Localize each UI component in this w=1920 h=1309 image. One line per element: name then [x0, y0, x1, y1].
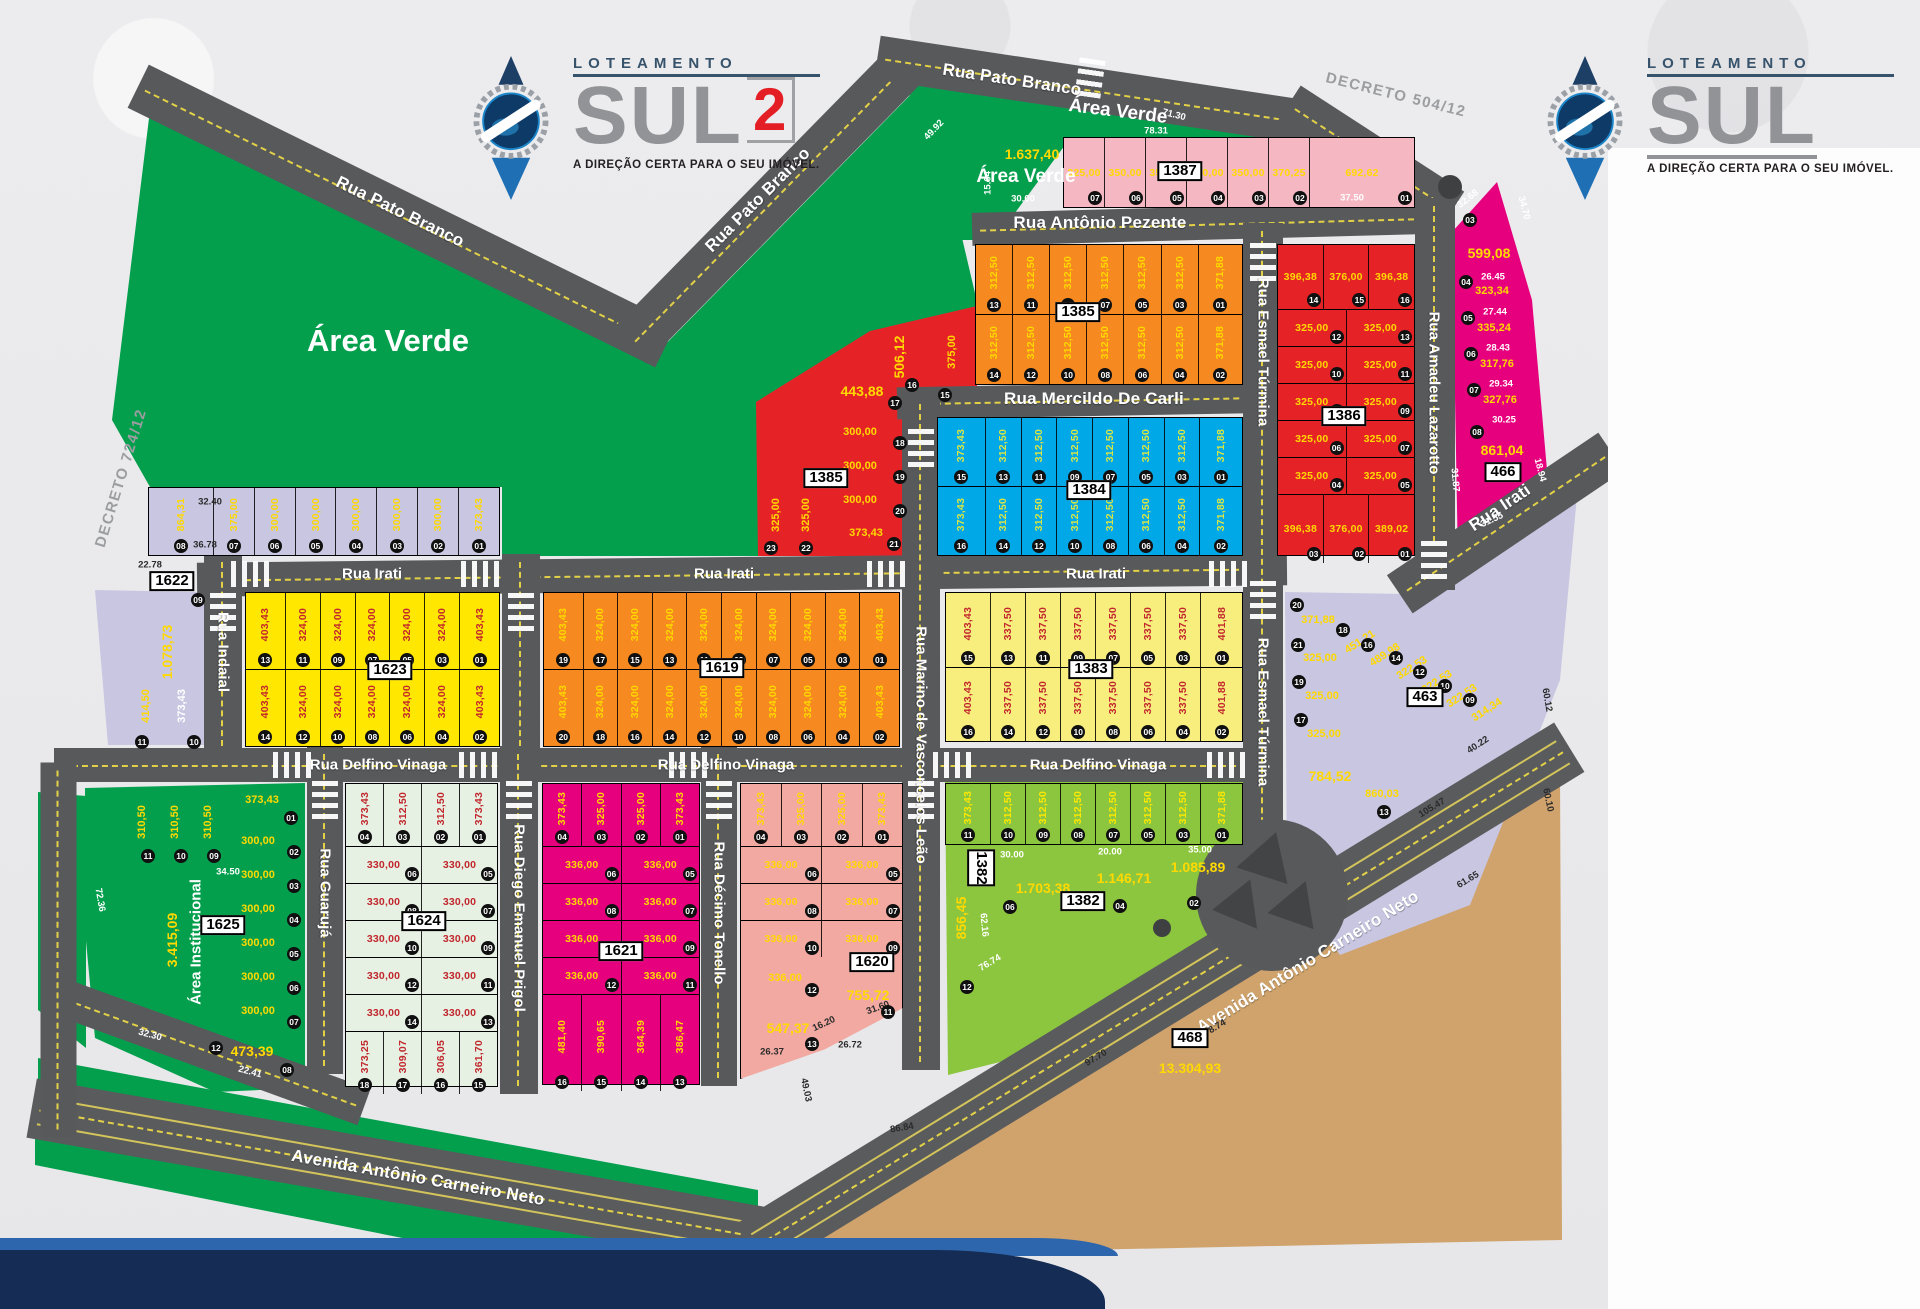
lot-area: 324,00 — [629, 685, 641, 718]
lot-number: 05 — [1170, 191, 1184, 205]
lot-area: 373,43 — [955, 429, 967, 462]
block-badge: 1383 — [1068, 659, 1113, 679]
lot[interactable]: 324,0010 — [722, 670, 757, 746]
quadra-1621: 373,4304325,0003325,0002373,4301336,0006… — [542, 783, 700, 1085]
lot[interactable]: 373,4301 — [460, 784, 497, 846]
lot-number: 08 — [174, 539, 188, 553]
quadra-1386: 396,3814376,0015396,3816325,0012325,0013… — [1277, 244, 1415, 556]
dimension-label: 29.34 — [1489, 379, 1513, 390]
dimension-label: 49.03 — [798, 1077, 814, 1103]
lot-number: 09 — [683, 941, 697, 955]
crosswalk — [1250, 243, 1276, 281]
lot-number: 14 — [996, 539, 1010, 553]
lot-area: 373,43 — [359, 792, 371, 825]
lot[interactable]: 324,0007 — [356, 593, 391, 669]
street-label: Rua Delfino Vinaga — [310, 757, 446, 774]
lot[interactable]: 337,5003 — [1166, 593, 1201, 667]
lot[interactable]: 312,5014 — [976, 315, 1013, 384]
lot[interactable]: 389,0201 — [1369, 495, 1414, 563]
lot-area: 401,88 — [1216, 607, 1228, 640]
lot[interactable]: 403,4313 — [246, 593, 286, 669]
lot-area: 330,00 — [443, 859, 476, 871]
lot[interactable]: 373,4301 — [661, 784, 699, 846]
lot[interactable]: 336,0008 — [741, 884, 822, 920]
lot-number: 08 — [1103, 539, 1117, 553]
lot-number: 05 — [1398, 478, 1412, 492]
lot[interactable]: 370,2502 — [1269, 138, 1310, 207]
block-badge: 1621 — [598, 941, 643, 961]
block-badge: 1384 — [1066, 480, 1111, 500]
lot-number: 10 — [1330, 367, 1344, 381]
lot-number: 15 — [954, 470, 968, 484]
lot[interactable]: 371,8802 — [1199, 315, 1242, 384]
lot[interactable]: 312,5013 — [976, 245, 1013, 314]
lot[interactable]: 371,8801 — [1200, 418, 1242, 486]
lot-row: 336,0006336,0005 — [741, 846, 902, 883]
lot[interactable]: 330,0006 — [346, 847, 422, 883]
lot-area: 375,00 — [228, 498, 240, 531]
lot-area: 330,00 — [367, 896, 400, 908]
lot[interactable]: 330,0005 — [422, 847, 497, 883]
lot[interactable]: 312,5006 — [1124, 315, 1161, 384]
lot[interactable]: 373,4304 — [543, 784, 582, 846]
lot-area: 324,00 — [837, 608, 849, 641]
lot-number: 11 — [296, 653, 310, 667]
decree-label: DECRETO 504/12 — [1324, 69, 1468, 120]
road[interactable] — [40, 763, 76, 1138]
lot[interactable]: 336,0012 — [543, 958, 622, 994]
lot-area: 325,00 — [800, 498, 812, 532]
dimension-label: 28.43 — [1486, 343, 1510, 354]
lot[interactable]: 325,0012 — [1278, 310, 1347, 346]
lot[interactable]: 361,7015 — [460, 1032, 497, 1094]
lot[interactable]: 337,5011 — [1026, 593, 1061, 667]
lot-area: 324,00 — [366, 685, 378, 718]
lot-number: 06 — [1330, 441, 1344, 455]
lot-area: 312,50 — [1176, 429, 1188, 462]
lot-number: 11 — [683, 978, 697, 992]
lot-area: 373,43 — [849, 527, 883, 539]
lot[interactable]: 300,0003 — [377, 488, 418, 555]
lot[interactable]: 324,0016 — [618, 670, 653, 746]
lot-number: 07 — [1467, 383, 1481, 397]
lot-number: 06 — [287, 981, 301, 995]
lot-number: 19 — [1292, 675, 1306, 689]
dimension-label: 36.78 — [193, 540, 217, 551]
lot-number: 14 — [634, 1075, 648, 1089]
crosswalk — [1250, 581, 1276, 619]
lot[interactable]: 373,4315 — [938, 418, 986, 486]
lot[interactable]: 350,0006 — [1105, 138, 1146, 207]
lot[interactable]: 324,0006 — [791, 670, 826, 746]
lot[interactable]: 403,4301 — [460, 593, 499, 669]
lot-row: 403,4320324,0018324,0016324,0014324,0012… — [544, 669, 899, 746]
lot[interactable]: 390,6515 — [582, 995, 621, 1091]
lot[interactable]: 312,5012 — [1013, 315, 1050, 384]
lot[interactable]: 403,4320 — [544, 670, 584, 746]
lot[interactable]: 325,0006 — [1278, 421, 1347, 457]
lot[interactable]: 324,0013 — [653, 593, 688, 669]
lot[interactable]: 325,0002 — [622, 784, 661, 846]
lot[interactable]: 324,0006 — [390, 670, 425, 746]
lot[interactable]: 324,0005 — [791, 593, 826, 669]
lot-number: 14 — [663, 730, 677, 744]
lot-area: 324,00 — [664, 685, 676, 718]
lot-area: 403,43 — [962, 607, 974, 640]
lot[interactable]: 373,2518 — [346, 1032, 384, 1094]
block-badge: 1624 — [401, 911, 446, 931]
lot[interactable]: 337,5014 — [991, 668, 1026, 742]
lot[interactable]: 371,8801 — [1201, 784, 1242, 844]
lot-number: 09 — [1463, 693, 1477, 707]
lot[interactable]: 325,0004 — [1278, 458, 1347, 494]
lot[interactable]: 396,3814 — [1278, 245, 1324, 309]
lot-area: 443,88 — [841, 383, 884, 399]
lot[interactable]: 336,0005 — [822, 847, 902, 883]
lot-area: 325,00 — [1295, 322, 1328, 334]
dimension-label: 30.25 — [1492, 415, 1516, 426]
lot-number: 13 — [673, 1075, 687, 1089]
lot[interactable]: 336,0010 — [741, 921, 822, 957]
lot[interactable]: 324,0005 — [390, 593, 425, 669]
lot[interactable]: 330,0013 — [422, 995, 497, 1031]
lot[interactable]: 312,5005 — [1131, 784, 1166, 844]
lot-number: 14 — [987, 368, 1001, 382]
lot-number: 18 — [893, 436, 907, 450]
lot-area: 373,43 — [955, 498, 967, 531]
lot-area: 337,50 — [1072, 681, 1084, 714]
lot[interactable]: 373,4304 — [741, 784, 782, 846]
street-label: Rua Mercildo De Carli — [1004, 389, 1184, 409]
lot-area: 330,00 — [367, 1007, 400, 1019]
lot[interactable]: 330,0014 — [346, 995, 422, 1031]
lot-area: 310,50 — [136, 805, 148, 839]
lot-number: 22 — [799, 541, 813, 555]
lot-area: 312,50 — [1140, 429, 1152, 462]
lot[interactable]: 364,3914 — [622, 995, 661, 1091]
lot-area: 336,00 — [845, 859, 878, 871]
lot-area: 373,43 — [674, 792, 686, 825]
lot[interactable]: 336,0006 — [543, 847, 622, 883]
lot[interactable]: 300,0006 — [255, 488, 296, 555]
lot-area: 300,00 — [241, 869, 275, 881]
lot-number: 07 — [287, 1015, 301, 1029]
lot-area: 323,34 — [1475, 285, 1509, 297]
lot-area: 300,00 — [843, 494, 877, 506]
lot[interactable]: 312,5008 — [1061, 784, 1096, 844]
lot[interactable]: 350,0003 — [1228, 138, 1269, 207]
lot-area: 325,00 — [1364, 433, 1397, 445]
lot[interactable]: 309,0717 — [384, 1032, 422, 1094]
lot-area: 312,50 — [397, 792, 409, 825]
lot-number: 02 — [434, 830, 448, 844]
crosswalk — [1209, 561, 1247, 587]
lot-number: 01 — [1215, 651, 1229, 665]
lot-number: 15 — [628, 653, 642, 667]
lot[interactable]: 312,5002 — [422, 784, 460, 846]
lot[interactable]: 325,0002 — [822, 784, 863, 846]
lot-number: 11 — [141, 849, 155, 863]
lot[interactable]: 324,0014 — [653, 670, 688, 746]
lot-area: 312,50 — [988, 326, 1000, 359]
lot-area: 325,00 — [635, 792, 647, 825]
lot[interactable]: 401,8802 — [1201, 668, 1242, 742]
lot[interactable]: 376,0015 — [1324, 245, 1370, 309]
lot[interactable]: 403,4314 — [246, 670, 286, 746]
lot-area: 312,50 — [1174, 256, 1186, 289]
lot[interactable]: 325,0011 — [1347, 347, 1415, 383]
lot[interactable]: 403,4316 — [946, 668, 991, 742]
lot-area: 324,00 — [297, 608, 309, 641]
lot-number: 08 — [1071, 828, 1085, 842]
lot[interactable]: 396,3816 — [1369, 245, 1414, 309]
lot[interactable]: 312,5014 — [986, 487, 1022, 555]
lot[interactable]: 325,0003 — [582, 784, 621, 846]
lot[interactable]: 324,0004 — [425, 670, 460, 746]
lot[interactable]: 373,4316 — [938, 487, 986, 555]
dimension-label: 62.16 — [977, 913, 990, 938]
lot-number: 03 — [1176, 651, 1190, 665]
lot[interactable]: 324,0008 — [356, 670, 391, 746]
lot-number: 03 — [1173, 298, 1187, 312]
lot[interactable]: 300,0002 — [418, 488, 459, 555]
lot[interactable]: 306,0516 — [422, 1032, 460, 1094]
lot[interactable]: 336,0006 — [741, 847, 822, 883]
lot[interactable]: 337,5005 — [1131, 593, 1166, 667]
lot[interactable]: 371,8802 — [1200, 487, 1242, 555]
lot-area: 371,88 — [1301, 614, 1335, 626]
lot-row: 396,3814376,0015396,3816 — [1278, 245, 1414, 309]
lot[interactable]: 312,5003 — [1165, 418, 1201, 486]
lot-area: 1.146,71 — [1097, 870, 1152, 886]
lot[interactable]: 373,4311 — [946, 784, 991, 844]
lot[interactable]: 324,0017 — [584, 593, 619, 669]
lot-area: 324,00 — [733, 608, 745, 641]
lot-area: 373,43 — [473, 792, 485, 825]
lot[interactable]: 325,0007 — [1347, 421, 1415, 457]
lot[interactable]: 324,0011 — [286, 593, 321, 669]
lot-area: 373,43 — [176, 689, 188, 723]
lot[interactable]: 403,4315 — [946, 593, 991, 667]
lot[interactable]: 336,0008 — [543, 884, 622, 920]
compass-icon — [463, 55, 559, 201]
lot-area: 324,00 — [698, 608, 710, 641]
lot[interactable]: 373,4301 — [459, 488, 499, 555]
lot[interactable]: 312,5006 — [1129, 487, 1165, 555]
lot-number: 02 — [1215, 725, 1229, 739]
lot[interactable]: 312,5010 — [991, 784, 1026, 844]
lot[interactable]: 312,5007 — [1093, 418, 1129, 486]
lot[interactable]: 325,0010 — [1278, 347, 1347, 383]
crosswalk — [508, 593, 534, 631]
lot-number: 10 — [1071, 725, 1085, 739]
lot[interactable]: 300,0005 — [296, 488, 337, 555]
lot[interactable]: 324,0012 — [286, 670, 321, 746]
lot[interactable]: 396,3803 — [1278, 495, 1324, 563]
lot-number: 04 — [555, 830, 569, 844]
lot[interactable]: 336,0005 — [622, 847, 700, 883]
lot[interactable]: 337,5007 — [1096, 593, 1131, 667]
lot[interactable]: 481,4016 — [543, 995, 582, 1091]
lot[interactable]: 312,5005 — [1129, 418, 1165, 486]
lot-area: 324,00 — [802, 608, 814, 641]
lot-number: 15 — [961, 651, 975, 665]
lot-row: 336,0012336,0011 — [543, 957, 699, 994]
lot[interactable]: 325,0013 — [1347, 310, 1415, 346]
lot-area: 692,62 — [1345, 167, 1378, 179]
dimension-label: 34.50 — [216, 867, 240, 878]
lot-area: 336,00 — [565, 896, 598, 908]
lot[interactable]: 312,5013 — [986, 418, 1022, 486]
lot-number: 12 — [296, 730, 310, 744]
lot[interactable]: 324,0003 — [425, 593, 460, 669]
lot-area: 312,50 — [1033, 429, 1045, 462]
lot[interactable]: 324,0008 — [757, 670, 792, 746]
lot[interactable]: 312,5007 — [1096, 784, 1131, 844]
lot[interactable]: 324,0012 — [687, 670, 722, 746]
lot[interactable]: 312,5012 — [1022, 487, 1058, 555]
lot[interactable]: 324,0009 — [321, 593, 356, 669]
lot-number: 03 — [390, 539, 404, 553]
lot-number: 11 — [1024, 298, 1038, 312]
lot-number: 03 — [1176, 828, 1190, 842]
dimension-label: 32.40 — [198, 497, 222, 508]
lot-area: 312,50 — [1104, 429, 1116, 462]
lot-number: 12 — [605, 978, 619, 992]
lot-number: 04 — [836, 730, 850, 744]
dimension-label: 22.78 — [138, 560, 162, 571]
quadra-1385: 312,5013312,5011312,5009312,5007312,5005… — [975, 244, 1243, 385]
lot[interactable]: 312,5009 — [1057, 418, 1093, 486]
lot-number: 08 — [1098, 368, 1112, 382]
dimension-label: 31.87 — [1448, 468, 1461, 493]
block-badge: 1623 — [367, 660, 412, 680]
lot-number: 17 — [1294, 713, 1308, 727]
lot[interactable]: 312,5010 — [1050, 315, 1087, 384]
lot-number: 05 — [1135, 298, 1149, 312]
lot[interactable]: 324,0010 — [321, 670, 356, 746]
lot[interactable]: 312,5005 — [1124, 245, 1161, 314]
lot-area: 324,00 — [401, 685, 413, 718]
lot-area: 300,00 — [241, 971, 275, 983]
lot[interactable]: 401,8801 — [1201, 593, 1242, 667]
lot-number: 03 — [435, 653, 449, 667]
lot[interactable]: 324,0007 — [757, 593, 792, 669]
lot-number: 10 — [1001, 828, 1015, 842]
lot[interactable]: 403,4319 — [544, 593, 584, 669]
lot-area: 300,00 — [241, 1005, 275, 1017]
lot[interactable]: 300,0004 — [336, 488, 377, 555]
dimension-label: 26.72 — [838, 1040, 862, 1051]
logo-name: SUL — [573, 77, 743, 155]
lot[interactable]: 336,0007 — [622, 884, 700, 920]
lot[interactable]: 337,5006 — [1131, 668, 1166, 742]
lot[interactable]: 312,5003 — [1162, 245, 1199, 314]
lot[interactable]: 312,5009 — [1026, 784, 1061, 844]
lot-number: 01 — [472, 830, 486, 844]
lot[interactable]: 336,0011 — [622, 958, 700, 994]
lot[interactable]: 403,4302 — [860, 670, 899, 746]
lot-number: 03 — [1463, 213, 1477, 227]
lot-number: 13 — [1377, 805, 1391, 819]
lot[interactable]: 324,0003 — [826, 593, 861, 669]
block-badge: 1385 — [803, 468, 848, 488]
lot-number: 08 — [365, 730, 379, 744]
lot-area: 300,00 — [432, 498, 444, 531]
lot[interactable]: 337,5013 — [991, 593, 1026, 667]
lot[interactable]: 312,5004 — [1162, 315, 1199, 384]
lot-area: 325,00 — [1295, 433, 1328, 445]
street-label: Rua Indaial — [215, 612, 232, 692]
lot[interactable]: 312,5011 — [1022, 418, 1058, 486]
lot-area: 336,00 — [644, 896, 677, 908]
dimension-label: 35.00 — [1188, 845, 1212, 856]
lot[interactable]: 403,4302 — [460, 670, 499, 746]
lot[interactable]: 324,0018 — [584, 670, 619, 746]
dimension-label: 78.31 — [1144, 126, 1168, 137]
lot-area: 337,50 — [1177, 607, 1189, 640]
lot-area: 324,00 — [698, 685, 710, 718]
lot-number: 03 — [794, 830, 808, 844]
lot-area: 386,47 — [674, 1020, 686, 1053]
lot[interactable]: 336,0007 — [822, 884, 902, 920]
lot[interactable]: 324,0015 — [618, 593, 653, 669]
lot[interactable]: 325,0005 — [1347, 458, 1415, 494]
lot-area: 300,00 — [310, 498, 322, 531]
lot-number: 09 — [191, 593, 205, 607]
lot[interactable]: 312,5003 — [384, 784, 422, 846]
lot-area: 373,43 — [556, 792, 568, 825]
lot[interactable]: 373,4301 — [863, 784, 903, 846]
crosswalk — [706, 781, 732, 819]
lot[interactable]: 403,4301 — [860, 593, 899, 669]
lot[interactable]: 312,5004 — [1165, 487, 1201, 555]
lot-number: 06 — [1141, 725, 1155, 739]
block-badge: 463 — [1406, 687, 1443, 707]
lot-number: 05 — [1141, 828, 1155, 842]
lot[interactable]: 330,0011 — [422, 958, 497, 994]
lot[interactable]: 312,5011 — [1013, 245, 1050, 314]
lot-area: 403,43 — [557, 685, 569, 718]
lot-area: 312,50 — [1037, 791, 1049, 824]
lot[interactable]: 337,5012 — [1026, 668, 1061, 742]
road[interactable] — [502, 554, 540, 754]
lot-area: 312,50 — [997, 429, 1009, 462]
lot[interactable]: 373,4304 — [346, 784, 384, 846]
block-badge: 1382 — [1060, 891, 1105, 911]
lot[interactable]: 337,5004 — [1166, 668, 1201, 742]
dimension-label: 30.00 — [1000, 850, 1024, 861]
lot[interactable]: 324,0004 — [826, 670, 861, 746]
lot[interactable]: 371,8801 — [1199, 245, 1242, 314]
lot[interactable]: 325,0003 — [782, 784, 823, 846]
lot-number: 05 — [481, 867, 495, 881]
street-label: Rua Diego Emanuel Prigol — [511, 824, 528, 1012]
lot-number: 12 — [209, 1041, 223, 1055]
lot-number: 11 — [1032, 470, 1046, 484]
lot[interactable]: 330,0012 — [346, 958, 422, 994]
area-label: Área Institucional — [188, 879, 205, 1005]
lot[interactable]: 312,5003 — [1166, 784, 1201, 844]
lot[interactable]: 337,5009 — [1061, 593, 1096, 667]
lot[interactable]: 376,0002 — [1324, 495, 1370, 563]
block-badge: 1386 — [1321, 406, 1366, 426]
lot-number: 06 — [400, 730, 414, 744]
lot[interactable]: 312,5008 — [1087, 315, 1124, 384]
lot[interactable]: 386,4713 — [661, 995, 699, 1091]
lot-area: 310,50 — [169, 805, 181, 839]
lot-number: 16 — [905, 378, 919, 392]
